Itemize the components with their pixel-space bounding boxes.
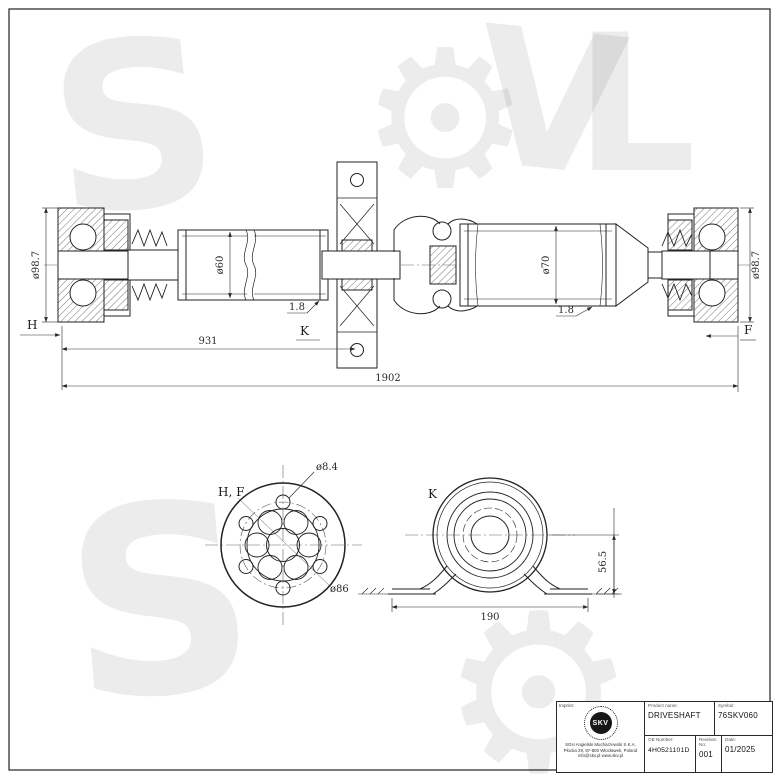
view-label-f: F [744,323,752,337]
view-label-h: H [27,318,37,332]
title-block-row-bottom: OE Number: 4H0521101D Revision No: 001 D… [645,736,772,772]
revision-label: Revision No: [699,737,718,747]
oe-number-cell: OE Number: 4H0521101D [645,736,696,772]
symbol-label: Symbol: [718,703,769,708]
product-name-cell: Product name: DRIVESHAFT [645,702,715,735]
dim-wall2: 1.8 [558,305,574,316]
revision-cell: Revision No: 001 [696,736,722,772]
dim-tube1: ø60 [215,256,226,275]
dim-left-flange: ø98.7 [31,251,42,279]
product-name-label: Product name: [648,703,711,708]
tube-end-cone [616,224,662,306]
title-block-fields: Product name: DRIVESHAFT Symbol: 76SKV06… [645,702,772,772]
title-block: Imprint: SKV SGH Angielski Mucharzewski … [556,701,773,773]
dim-bolt-circle: ø86 [330,584,349,595]
symbol-cell: Symbol: 76SKV060 [715,702,772,735]
drawing-sheet: S ⚙ V L S ⚙ [0,0,779,779]
right-tube [460,224,616,306]
dim-wall1: 1.8 [289,302,305,313]
title-block-company-cell: Imprint: SKV SGH Angielski Mucharzewski … [557,702,645,772]
brand-watermark: S ⚙ V L S ⚙ [38,0,696,779]
date-label: Date: [725,737,769,742]
dim-bearing-height: 56.5 [598,551,609,573]
revision-value: 001 [699,750,713,759]
symbol-value: 76SKV060 [718,711,758,720]
company-line: SGH Angielski Mucharzewski S.K.A. [564,742,638,748]
date-cell: Date: 01/2025 [722,736,772,772]
company-logo: SKV [584,706,618,740]
watermark-letter: L [575,0,696,215]
date-value: 01/2025 [725,745,755,754]
dim-right-flange: ø98.7 [751,251,762,279]
imprint-label: Imprint: [559,703,574,708]
product-name-value: DRIVESHAFT [648,711,701,720]
dim-tube2: ø70 [541,256,552,275]
technical-drawing: S ⚙ V L S ⚙ [0,0,779,779]
oe-number-label: OE Number: [648,737,692,742]
dim-bolt-hole: ø8.4 [316,462,338,473]
uj-cross [430,246,456,284]
dim-length-total: 1902 [375,373,400,384]
company-address: SGH Angielski Mucharzewski S.K.A. Płocka… [564,742,638,759]
title-block-row-top: Product name: DRIVESHAFT Symbol: 76SKV06… [645,702,772,736]
view-label-k: K [300,324,310,338]
gear-logo-icon: SKV [590,712,612,734]
dim-bearing-width: 190 [480,612,499,623]
company-line: info@skv.pl www.skv.pl [564,753,638,759]
left-tube [178,230,328,300]
right-cv-joint [662,208,738,322]
dim-length-partial: 931 [198,336,217,347]
center-bearing [342,240,372,251]
detail-flange-label: H, F [218,485,244,499]
detail-bearing-label: K [428,487,438,501]
oe-number-value: 4H0521101D [648,747,690,754]
